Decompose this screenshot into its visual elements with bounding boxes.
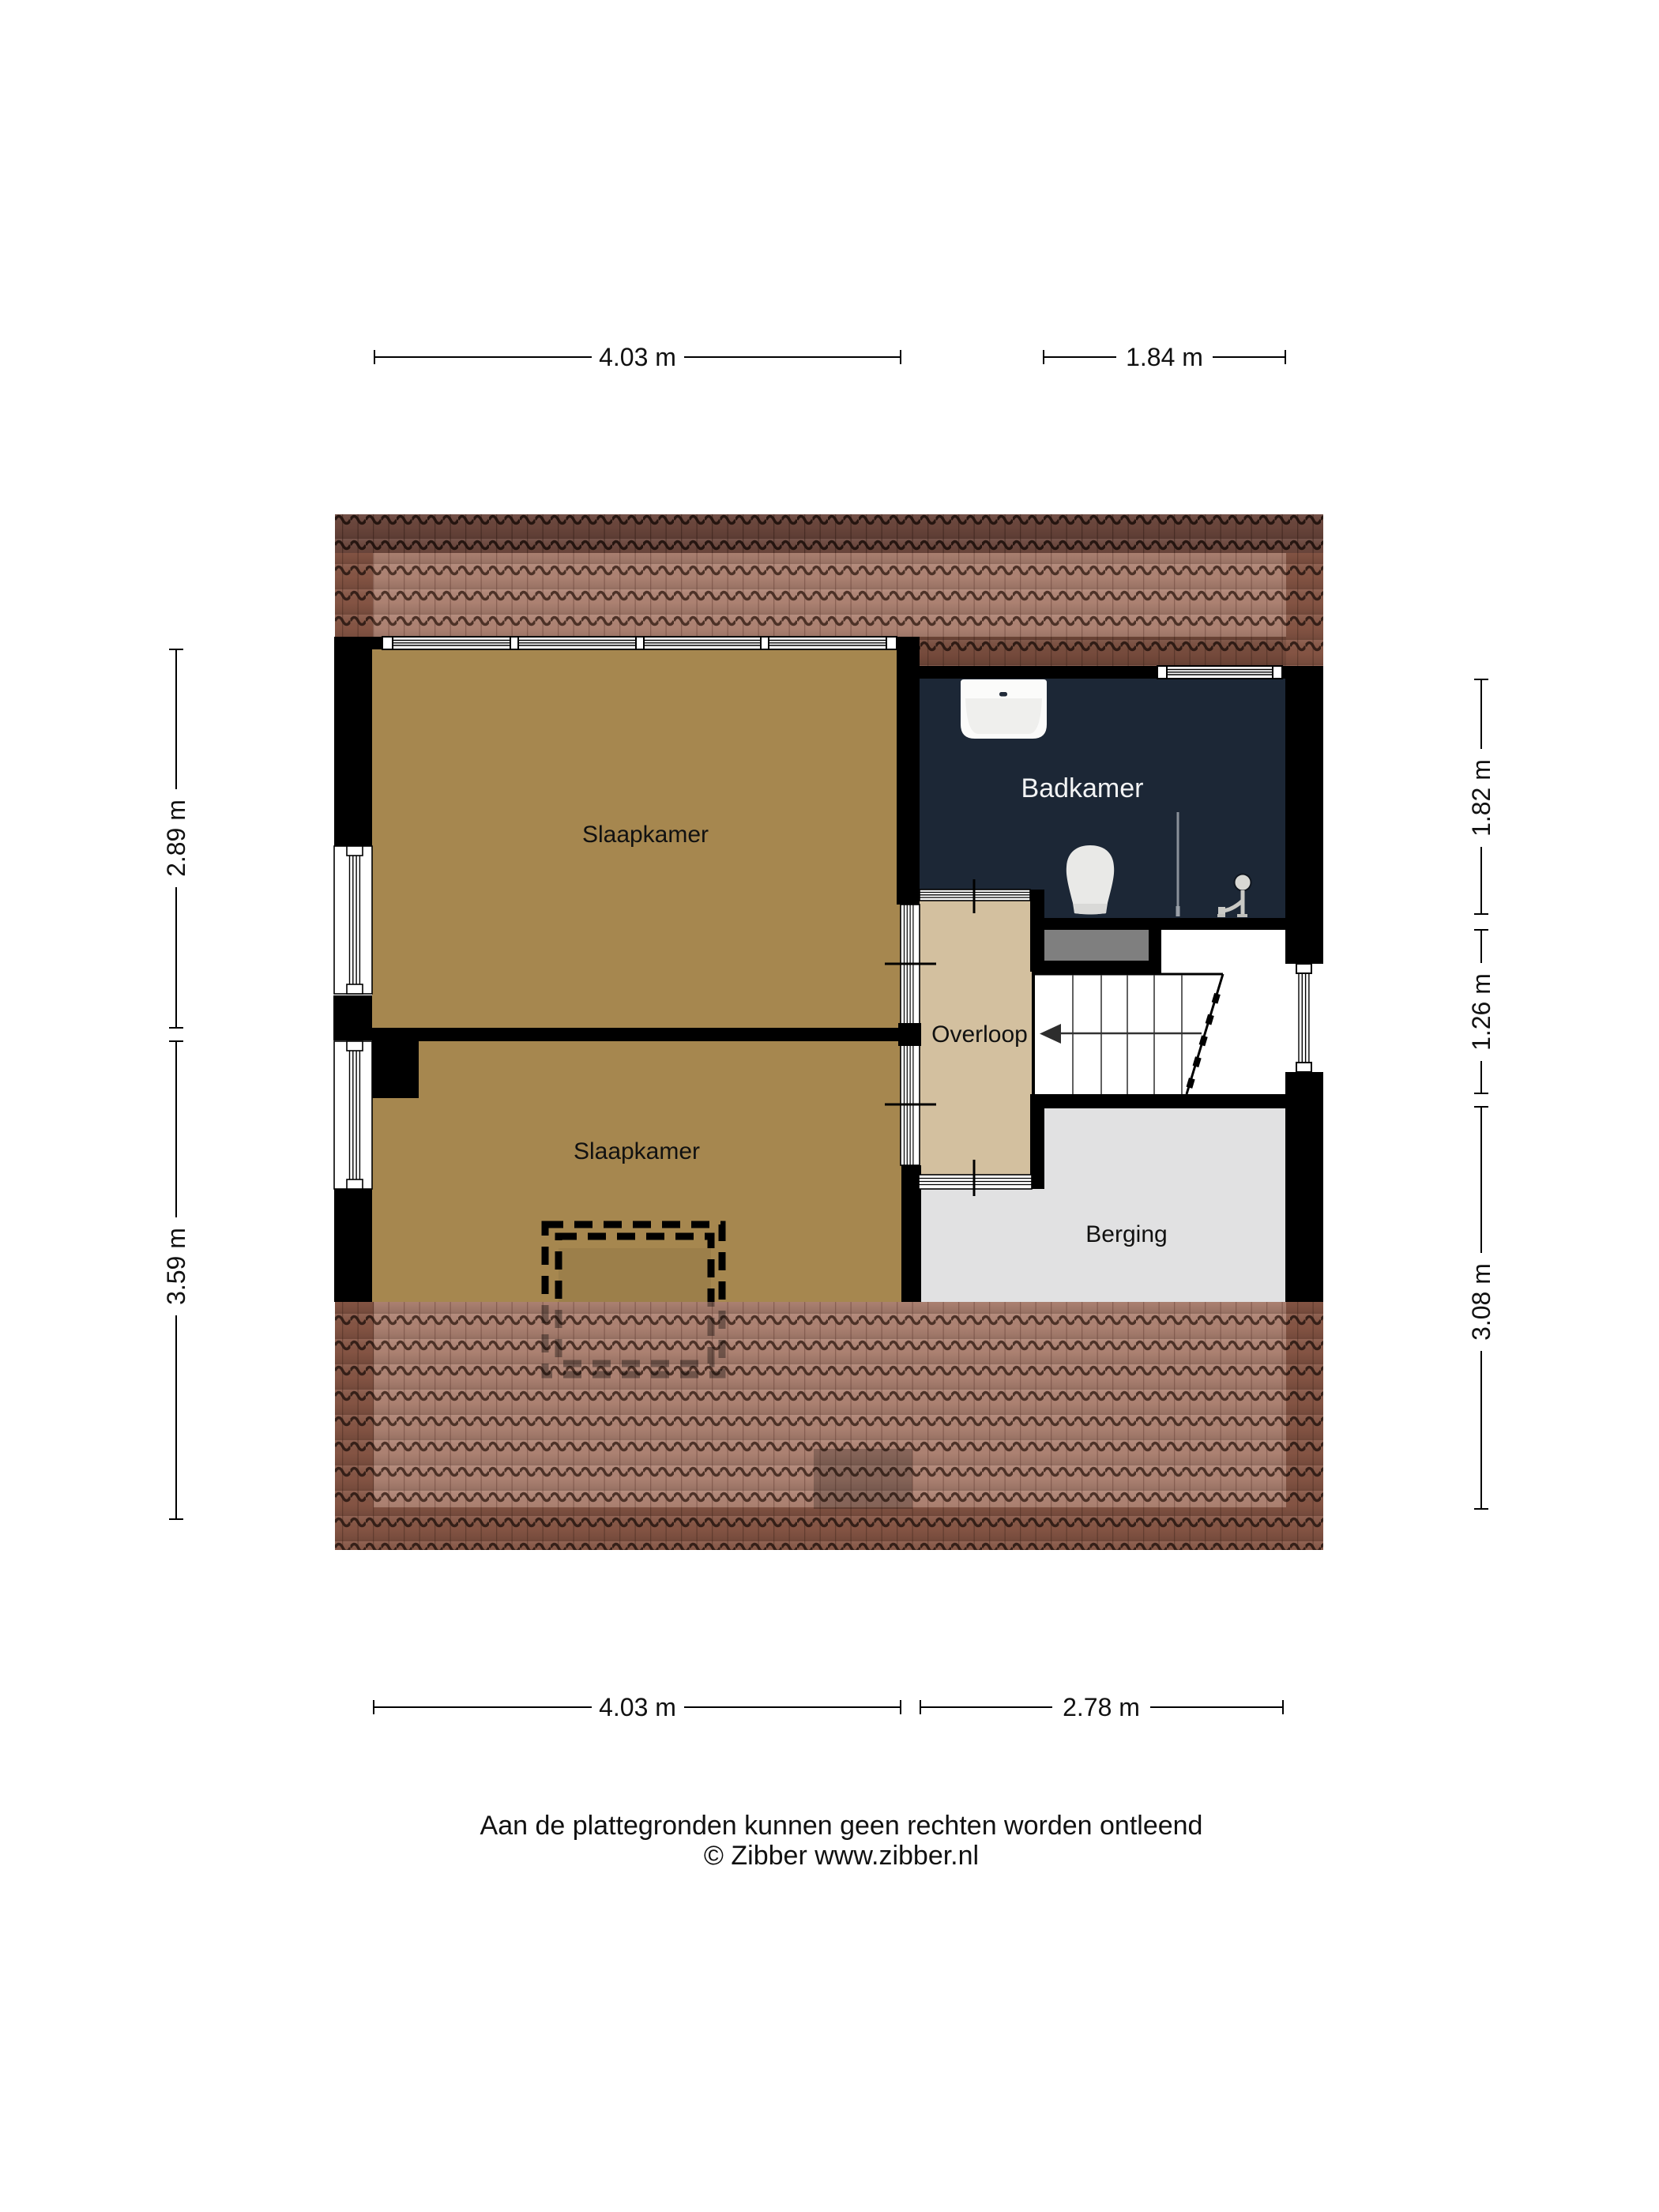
svg-text:Slaapkamer: Slaapkamer: [574, 1138, 700, 1164]
svg-text:3.08 m: 3.08 m: [1467, 1263, 1495, 1341]
svg-text:3.59 m: 3.59 m: [162, 1228, 190, 1305]
svg-text:Berging: Berging: [1085, 1221, 1167, 1247]
svg-text:Badkamer: Badkamer: [1021, 773, 1144, 803]
svg-text:2.89 m: 2.89 m: [162, 799, 190, 877]
svg-text:1.82 m: 1.82 m: [1467, 759, 1495, 837]
svg-text:1.84 m: 1.84 m: [1126, 343, 1203, 371]
svg-text:1.26 m: 1.26 m: [1467, 973, 1495, 1051]
svg-text:4.03 m: 4.03 m: [599, 1693, 676, 1721]
svg-text:© Zibber www.zibber.nl: © Zibber www.zibber.nl: [704, 1841, 979, 1871]
svg-text:2.78 m: 2.78 m: [1063, 1693, 1140, 1721]
svg-text:4.03 m: 4.03 m: [599, 343, 676, 371]
svg-text:Slaapkamer: Slaapkamer: [582, 822, 709, 848]
svg-text:Overloop: Overloop: [931, 1021, 1028, 1048]
svg-text:Aan de plattegronden kunnen ge: Aan de plattegronden kunnen geen rechten…: [480, 1811, 1203, 1841]
